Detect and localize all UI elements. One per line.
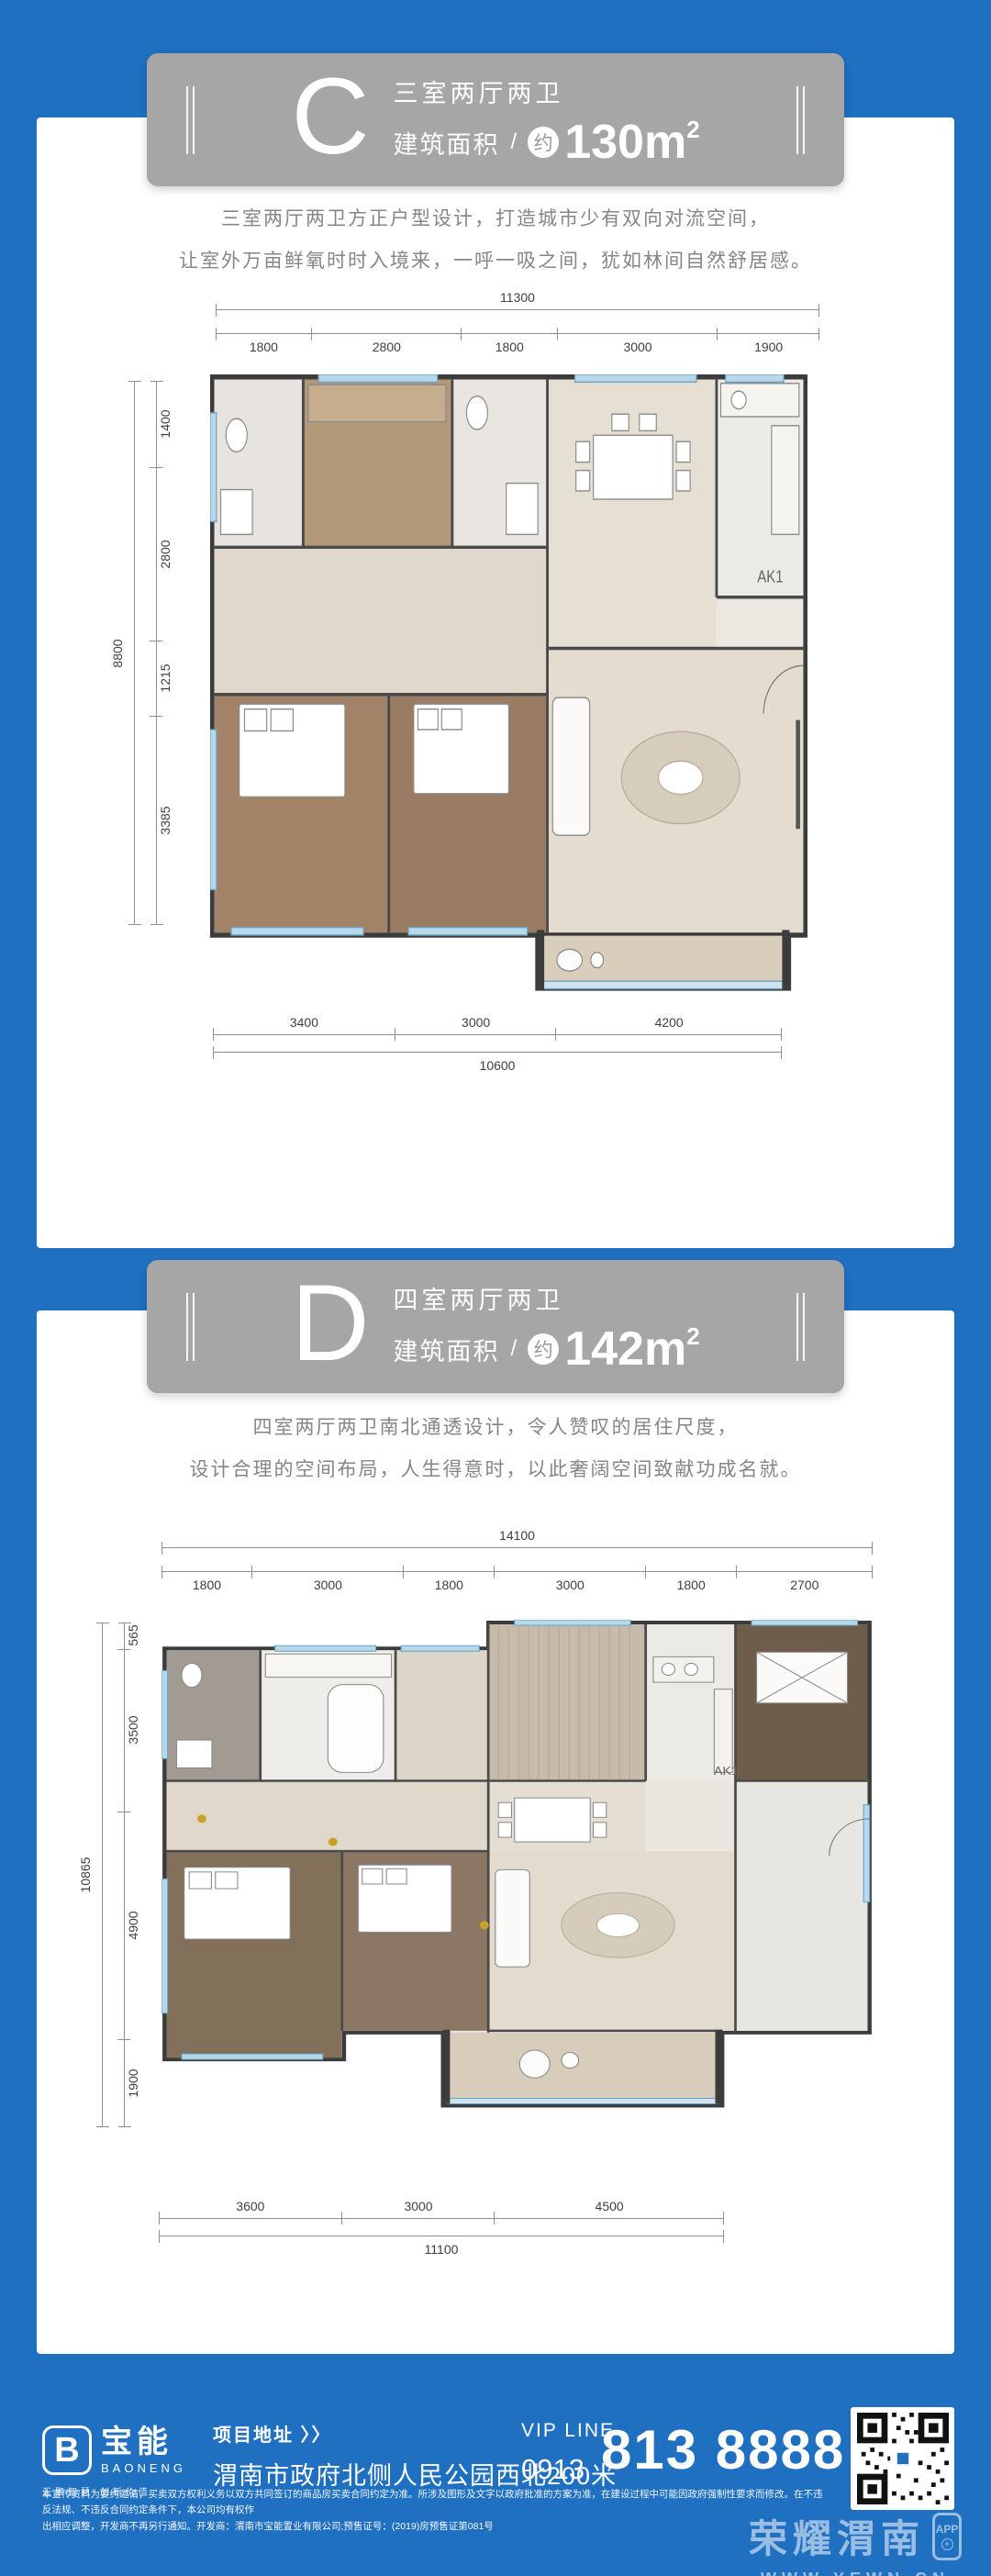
separator-slash: / (511, 129, 518, 155)
plan-c-description: 三室两厅两卫方正户型设计，打造城市少有双向对流空间， 让室外万亩鲜氧时时入境来，… (37, 198, 954, 283)
dim-seg: 565 (126, 1625, 140, 1646)
dim-seg: 4200 (655, 1015, 684, 1030)
separator-slash: / (511, 1336, 518, 1362)
baoneng-logo: B 宝能 BAONENG (42, 2425, 186, 2475)
logo-name-cn: 宝能 (101, 2425, 186, 2459)
plan-d-area-sup: 2 (686, 1322, 699, 1351)
plan-d-desc-line2: 设计合理的空间布局，人生得意时，以此奢阔空间致献功成名就。 (37, 1449, 954, 1491)
plan-c-area-label: 建筑面积 (394, 125, 500, 161)
logo-name-en: BAONENG (101, 2461, 186, 2475)
dim-seg: 2800 (158, 540, 173, 568)
dim-seg: 1800 (250, 340, 278, 354)
plan-d-letter: D (291, 1269, 369, 1377)
plan-c-area-sup: 2 (686, 116, 699, 144)
phone-number: 813 8888 (601, 2418, 845, 2481)
dim-seg: 1800 (677, 1578, 706, 1592)
watermark-app-icon: APP + (932, 2513, 962, 2560)
watermark-url: WWW.YEWN.CN (749, 2570, 962, 2576)
disclaimer-text: 本宣传资料为要约邀请，买卖双方权利义务以双方共同签订的商品房买卖合同约定为准。所… (42, 2487, 831, 2535)
dim-total: 10865 (78, 1857, 93, 1893)
dim-seg: 1800 (435, 1578, 463, 1592)
dim-seg: 3000 (623, 340, 651, 354)
watermark: 荣耀渭南 APP + WWW.YEWN.CN (749, 2508, 962, 2576)
floor-plan-c: AK1 (210, 374, 807, 998)
plan-d-bottom-ruler: 3600 3000 4500 11100 (159, 2199, 724, 2257)
plan-d-desc-line1: 四室两厅两卫南北通透设计，令人赞叹的居住尺度， (37, 1407, 954, 1449)
watermark-app-label: APP (936, 2523, 959, 2536)
dim-seg: 3600 (236, 2199, 264, 2214)
dim-total: 8800 (110, 639, 125, 667)
watermark-title: 荣耀渭南 (749, 2508, 925, 2564)
disclaimer-line1: 本宣传资料为要约邀请，买卖双方权利义务以双方共同签订的商品房买卖合同约定为准。所… (42, 2489, 823, 2515)
plan-d-area-value: 142m (564, 1325, 686, 1373)
decorative-lines-left-icon (186, 86, 195, 154)
qr-code (851, 2407, 954, 2510)
approx-circle-icon: 约 (528, 1333, 559, 1365)
plan-c-left-ruler: 8800 1400 2800 1215 3385 (108, 381, 174, 925)
dim-seg: 1800 (495, 340, 524, 354)
plan-c-ak-annotation: AK1 (757, 567, 783, 586)
plan-c-desc-line2: 让室外万亩鲜氧时时入境来，一呼一吸之间，犹如林间自然舒居感。 (37, 240, 954, 283)
dim-seg: 3000 (462, 1015, 490, 1030)
disclaimer-line2: 出相应调整，开发商不再另行通知。开发商：渭南市宝能置业有限公司;预售证号：(20… (42, 2521, 494, 2532)
dim-seg: 1900 (754, 340, 783, 354)
footer: B 宝能 BAONENG 汇聚智慧 创新价值 项目地址 〉〉 渭南市政府北侧人民… (0, 2354, 991, 2576)
dim-seg: 1400 (158, 410, 173, 439)
approx-circle-icon: 约 (528, 127, 559, 158)
floor-plan-d: AK1 (161, 1620, 873, 2157)
plan-d-card: D 四室两厅两卫 建筑面积 / 约 142m 2 四室两厅两卫南北通透设计，令人… (37, 1310, 954, 2354)
dim-total: 10600 (213, 1058, 782, 1073)
plan-d-area-label: 建筑面积 (394, 1332, 500, 1367)
dim-seg: 3400 (290, 1015, 318, 1030)
dim-total: 11100 (159, 2242, 724, 2257)
decorative-lines-right-icon (796, 1293, 805, 1361)
dim-seg: 1215 (158, 664, 173, 692)
decorative-lines-left-icon (186, 1293, 195, 1361)
dim-seg: 3385 (158, 806, 173, 834)
plan-c-area-value: 130m (564, 118, 686, 166)
plan-c-bottom-ruler: 3400 3000 4200 10600 (213, 1015, 782, 1073)
dim-seg: 3500 (126, 1716, 140, 1745)
plan-d-top-ruler: 14100 1800 3000 1800 3000 1800 2700 (161, 1528, 873, 1592)
dim-seg: 2700 (790, 1578, 818, 1592)
baoneng-logo-icon: B (42, 2425, 92, 2475)
plan-c-desc-line1: 三室两厅两卫方正户型设计，打造城市少有双向对流空间， (37, 198, 954, 240)
dim-seg: 3000 (314, 1578, 342, 1592)
plan-d-ak-annotation: AK1 (714, 1764, 739, 1777)
plus-icon: + (941, 2538, 953, 2550)
plan-c-top-ruler: 11300 1800 2800 1800 3000 1900 (216, 290, 819, 354)
plan-c-card: C 三室两厅两卫 建筑面积 / 约 130m 2 三室两厅两卫方正户型设计，打造… (37, 117, 954, 1248)
decorative-lines-right-icon (796, 86, 805, 154)
dim-seg: 4900 (126, 1911, 140, 1939)
dim-seg: 2800 (373, 340, 401, 354)
qr-code-icon (857, 2413, 949, 2504)
dim-seg: 3000 (556, 1578, 585, 1592)
plan-c-letter: C (291, 62, 369, 171)
plan-d-header-badge: D 四室两厅两卫 建筑面积 / 约 142m 2 (147, 1260, 844, 1393)
dim-seg: 1800 (193, 1578, 221, 1592)
plan-d-type-label: 四室两厅两卫 (394, 1280, 700, 1316)
plan-c-header-badge: C 三室两厅两卫 建筑面积 / 约 130m 2 (147, 53, 844, 186)
poster-page: C 三室两厅两卫 建筑面积 / 约 130m 2 三室两厅两卫方正户型设计，打造… (0, 0, 991, 2576)
dim-total: 11300 (216, 290, 819, 305)
plan-d-description: 四室两厅两卫南北通透设计，令人赞叹的居住尺度， 设计合理的空间布局，人生得意时，… (37, 1407, 954, 1491)
plan-d-left-ruler: 10865 565 3500 4900 1900 (76, 1623, 142, 2127)
dim-seg: 3000 (404, 2199, 432, 2214)
dim-seg: 1900 (126, 2069, 140, 2097)
dim-total: 14100 (161, 1528, 873, 1543)
dim-seg: 4500 (596, 2199, 624, 2214)
plan-c-type-label: 三室两厅两卫 (394, 73, 700, 109)
